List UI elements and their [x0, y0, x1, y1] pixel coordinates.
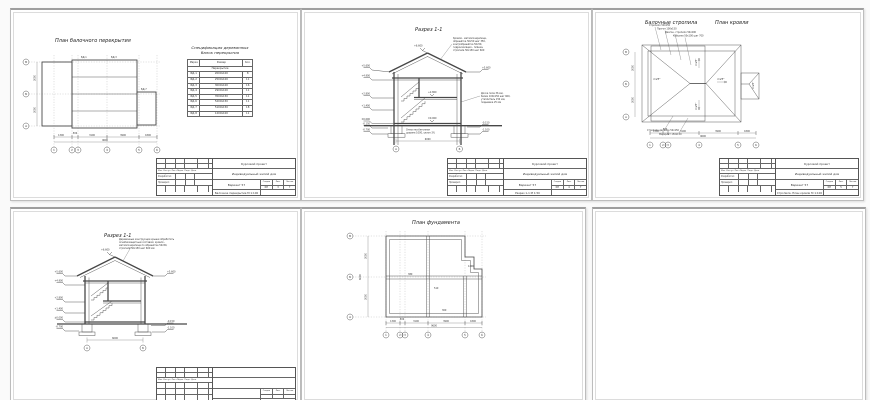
- svg-text:300: 300: [442, 309, 447, 312]
- svg-text:500: 500: [663, 128, 668, 131]
- stamp-checked-label: Проверил: [157, 180, 176, 185]
- stamp-variant: Вариант 57: [504, 180, 552, 189]
- svg-text:-0.700: -0.700: [363, 129, 371, 132]
- base-annotation: Отмостка бетонная ширина 1000, уклон 3%: [406, 129, 436, 135]
- svg-text:380: 380: [408, 273, 413, 276]
- svg-text:2: 2: [662, 143, 664, 147]
- svg-text:3900: 3900: [120, 134, 126, 137]
- svg-text:1300: 1300: [653, 130, 659, 133]
- spec-title-line2: балок перекрытия: [181, 51, 259, 56]
- svg-text:3: 3: [77, 148, 79, 152]
- svg-text:Б: Б: [25, 92, 27, 96]
- stamp-project: Курсовой проект: [504, 159, 586, 169]
- svg-text:А: А: [86, 346, 88, 350]
- svg-text:9600: 9600: [431, 325, 437, 328]
- svg-text:3000: 3000: [632, 97, 635, 103]
- svg-text:9600: 9600: [102, 139, 108, 142]
- svg-text:6: 6: [156, 148, 158, 152]
- svg-text:БД-1: БД-1: [81, 56, 87, 59]
- dimension-lines: 1300 500 3100 3900 1800 9600 3000 3000: [34, 62, 158, 142]
- stamp-variant: Вариант 57: [776, 180, 824, 189]
- svg-text:500: 500: [400, 318, 405, 321]
- svg-text:5: 5: [138, 148, 140, 152]
- stamp-object: Индивидуальный жилой дом: [776, 169, 858, 180]
- svg-text:3000: 3000: [34, 107, 37, 113]
- stamp-developed-label: Разработал: [157, 174, 176, 179]
- svg-text:6: 6: [755, 143, 757, 147]
- svg-text:1300: 1300: [390, 320, 396, 323]
- svg-text:1: 1: [53, 148, 55, 152]
- axis-bubbles: 1 2 3 4 5 6 В Б А: [23, 59, 160, 153]
- svg-text:3: 3: [667, 143, 669, 147]
- svg-text:+2.800: +2.800: [428, 91, 437, 94]
- sheet-roof-plan[interactable]: i=25° i=25° i=25° i=25° i=25° Стропило 5…: [592, 8, 864, 201]
- stamp-stage-table: СтадияЛистЛистов КП47: [552, 180, 586, 189]
- stamp-variant: Вариант 57: [213, 180, 261, 189]
- blank-sheet-frame: [593, 209, 865, 400]
- svg-text:3900: 3900: [443, 320, 449, 323]
- beam-spec-table: Спецификация деревянных балок перекрытия…: [181, 46, 259, 117]
- svg-text:+4.900: +4.900: [361, 75, 370, 78]
- svg-text:+1.400: +1.400: [361, 105, 370, 108]
- svg-text:Мауэрлат 150х150: Мауэрлат 150х150: [659, 133, 682, 136]
- svg-text:3000: 3000: [365, 253, 368, 259]
- slope-labels: i=25° i=25° i=25° i=25° i=25°: [653, 58, 755, 110]
- svg-text:i=25°: i=25°: [694, 102, 698, 110]
- svg-text:±0.000: ±0.000: [361, 118, 370, 121]
- svg-text:1: 1: [385, 333, 387, 337]
- sheet-foundation-plan[interactable]: 380 510 300 1200 1300 500 3100 3900 1800…: [301, 207, 586, 400]
- svg-text:БД-3: БД-3: [111, 56, 117, 59]
- stamp-stage-table: СтадияЛистЛистов КП37: [261, 180, 295, 189]
- svg-text:Б: Б: [142, 346, 144, 350]
- title-block: Изм. Кол.уч. Лист №док. Подп. Дата Разра…: [719, 158, 859, 196]
- sheet-section-2[interactable]: +5.600 +4.900 +2.800 +1.400 ±0.000 -0.70…: [10, 207, 301, 400]
- svg-text:3: 3: [404, 333, 406, 337]
- title-block-signatures: Изм. Кол.уч. Лист №док. Подп. Дата Разра…: [448, 159, 504, 195]
- svg-text:-0.150: -0.150: [363, 123, 371, 126]
- svg-text:1200: 1200: [468, 265, 474, 268]
- svg-text:А: А: [625, 115, 627, 119]
- svg-text:стропила 50х150 шаг 600 мм: стропила 50х150 шаг 600 мм: [119, 247, 155, 250]
- sheet5-title: План фундамента: [412, 220, 460, 226]
- svg-text:+1.400: +1.400: [54, 308, 63, 311]
- svg-text:Кобылка 50х100 шаг 700: Кобылка 50х100 шаг 700: [673, 35, 704, 38]
- svg-text:2: 2: [399, 333, 401, 337]
- svg-text:+5.600: +5.600: [361, 65, 370, 68]
- svg-text:500: 500: [73, 132, 78, 135]
- svg-text:3100: 3100: [680, 130, 686, 133]
- svg-text:Б: Б: [459, 147, 461, 151]
- svg-text:ширина 1000, уклон 3%: ширина 1000, уклон 3%: [406, 132, 436, 135]
- svg-text:6000: 6000: [425, 138, 431, 141]
- stamp-stage-table: СтадияЛистЛистов: [261, 389, 295, 398]
- svg-text:-0.150: -0.150: [482, 122, 490, 125]
- stamp-project: Курсовой проект: [776, 159, 858, 169]
- svg-text:6: 6: [481, 333, 483, 337]
- roof-annotation: Кровля - металлочерепица, обрешётка 50х5…: [440, 37, 487, 60]
- svg-text:-0.700: -0.700: [56, 326, 64, 329]
- svg-text:Б: Б: [625, 82, 627, 86]
- section-dimension: 6000 А Б: [393, 138, 463, 152]
- svg-text:БД-7: БД-7: [141, 88, 147, 91]
- svg-text:3000: 3000: [34, 75, 37, 81]
- svg-text:+6.600: +6.600: [101, 249, 110, 252]
- svg-text:5: 5: [737, 143, 739, 147]
- svg-text:+5.600: +5.600: [167, 271, 176, 274]
- svg-text:9600: 9600: [700, 135, 706, 138]
- svg-text:В: В: [625, 50, 627, 54]
- svg-text:подшивка 25 мм: подшивка 25 мм: [481, 101, 501, 104]
- elevation-marks-right: +5.600 -0.150 -1.100: [151, 271, 176, 332]
- svg-text:±0.000: ±0.000: [54, 317, 63, 320]
- stamp-object: Индивидуальный жилой дом: [213, 169, 295, 180]
- roof-annotation: Деревянные конструкции крыши обработать …: [119, 238, 175, 261]
- svg-text:+6.600: +6.600: [414, 45, 423, 48]
- foundation-outline: 380 510 300 1200: [386, 236, 482, 317]
- svg-text:1: 1: [649, 143, 651, 147]
- svg-text:5: 5: [464, 333, 466, 337]
- svg-text:3900: 3900: [715, 130, 721, 133]
- title-block: Изм. Кол.уч. Лист №док. Подп. Дата Разра…: [156, 158, 296, 196]
- svg-text:4: 4: [106, 148, 108, 152]
- stamp-doc-title: Разрез 1-1 М 1:50: [504, 190, 551, 195]
- svg-text:Б: Б: [349, 275, 351, 279]
- dimension-lines: 1300 500 3100 3900 1800 9600 3000 3000: [632, 52, 757, 138]
- svg-text:А: А: [395, 147, 397, 151]
- svg-text:1800: 1800: [145, 134, 151, 137]
- svg-text:+5.600: +5.600: [482, 67, 491, 70]
- title-block-signatures: Изм. Кол.уч. Лист №док. Подп. Дата: [157, 368, 213, 400]
- title-block-signatures: Изм. Кол.уч. Лист №док. Подп. Дата Разра…: [157, 159, 213, 195]
- foundation-plan-drawing: 380 510 300 1200 1300 500 3100 3900 1800…: [302, 209, 585, 400]
- svg-text:стропила 50х150 шаг 600: стропила 50х150 шаг 600: [453, 49, 485, 52]
- sheet1-title: План балочного перекрытия: [55, 38, 131, 44]
- sheet4-title: Разрез 1-1: [104, 233, 131, 239]
- stamp-project: Курсовой проект: [213, 159, 295, 169]
- stamp-object: Индивидуальный жилой дом: [504, 169, 586, 180]
- svg-text:В: В: [349, 234, 351, 238]
- svg-text:-1.100: -1.100: [167, 327, 175, 330]
- svg-text:i=25°: i=25°: [653, 77, 661, 81]
- roof-plan-body: [642, 45, 759, 122]
- svg-text:6000: 6000: [359, 274, 362, 280]
- svg-text:510: 510: [434, 287, 439, 290]
- spec-row: БД-81200х10011: [188, 111, 253, 117]
- section-structure: [57, 257, 187, 336]
- title-block-empty: Изм. Кол.уч. Лист №док. Подп. Дата Стади…: [156, 367, 296, 400]
- sheet3-title-left: Балочные стропила: [645, 20, 697, 26]
- svg-text:4: 4: [427, 333, 429, 337]
- svg-text:3000: 3000: [632, 65, 635, 71]
- drawing-canvas: БД-1 БД-3 БД-7 1300 500 3100 3900 1800 9…: [0, 0, 870, 400]
- svg-text:+4.900: +4.900: [54, 280, 63, 283]
- svg-text:А: А: [25, 124, 27, 128]
- svg-text:3000: 3000: [365, 294, 368, 300]
- svg-text:2: 2: [71, 148, 73, 152]
- svg-text:1300: 1300: [58, 134, 64, 137]
- svg-text:-0.150: -0.150: [167, 320, 175, 323]
- stamp-doc-title: Стропила. План кровли М 1:100: [776, 190, 823, 195]
- sheet-blank[interactable]: [592, 207, 866, 400]
- staircase: [401, 78, 425, 122]
- svg-text:-1.100: -1.100: [482, 129, 490, 132]
- floor-annotation: Доска пола 36 мм, балки 100х150 шаг 600,…: [461, 92, 511, 104]
- svg-text:+2.800: +2.800: [361, 93, 370, 96]
- svg-text:3100: 3100: [413, 320, 419, 323]
- svg-text:В: В: [25, 60, 27, 64]
- sheet-section-1[interactable]: +5.600 +4.900 +2.800 +1.400 ±0.000 -0.15…: [301, 8, 592, 201]
- stamp-doc-title: Балочное перекрытие М 1:100: [213, 190, 260, 195]
- sheet2-title: Разрез 1-1: [415, 27, 442, 33]
- sheet-beam-plan[interactable]: БД-1 БД-3 БД-7 1300 500 3100 3900 1800 9…: [10, 8, 301, 201]
- title-block: Изм. Кол.уч. Лист №док. Подп. Дата Разра…: [447, 158, 587, 196]
- svg-text:6000: 6000: [112, 337, 118, 340]
- beam-plan-body: БД-1 БД-3 БД-7: [42, 56, 156, 128]
- svg-text:А: А: [349, 315, 351, 319]
- sheet3-title-right: План кровли: [715, 20, 749, 26]
- svg-text:1800: 1800: [470, 320, 476, 323]
- svg-text:i=25°: i=25°: [694, 58, 698, 66]
- section-dimension: 6000 А Б: [84, 337, 146, 351]
- svg-text:i=25°: i=25°: [717, 77, 725, 81]
- stamp-stage-table: СтадияЛистЛистов КП57: [824, 180, 858, 189]
- svg-text:+5.600: +5.600: [54, 271, 63, 274]
- svg-text:1800: 1800: [744, 130, 750, 133]
- svg-text:±0.000: ±0.000: [428, 117, 437, 120]
- svg-text:i=25°: i=25°: [751, 81, 755, 89]
- spec-table: МаркаРазмерКол. Перекрытие БД-12000х1008…: [187, 59, 253, 117]
- title-block-signatures: Изм. Кол.уч. Лист №док. Подп. Дата Разра…: [720, 159, 776, 195]
- svg-text:3100: 3100: [89, 134, 95, 137]
- svg-text:+2.800: +2.800: [54, 297, 63, 300]
- svg-text:4: 4: [698, 143, 700, 147]
